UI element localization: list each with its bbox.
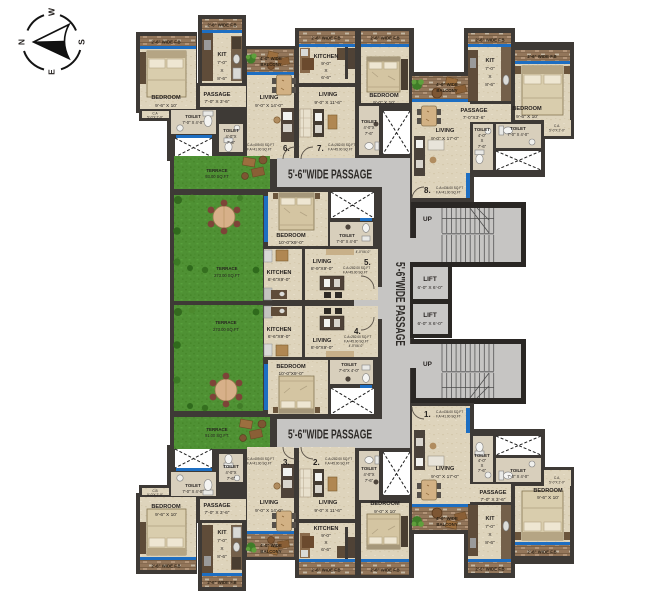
svg-text:BALCONY: BALCONY [436, 88, 457, 93]
svg-text:6'-0" X 6'-0": 6'-0" X 6'-0" [418, 321, 443, 327]
svg-text:91.00 SQ.FT.: 91.00 SQ.FT. [205, 433, 229, 438]
svg-text:KITCHEN: KITCHEN [267, 270, 292, 276]
svg-text:F.A=41.00 SQ.FT: F.A=41.00 SQ.FT [247, 148, 272, 152]
svg-text:9'-0" X 11'-6": 9'-0" X 11'-6" [314, 508, 342, 514]
svg-text:9'-0" X 10': 9'-0" X 10' [373, 100, 395, 106]
svg-text:7'-0" X 4'-0": 7'-0" X 4'-0" [507, 474, 529, 479]
svg-text:7'-6": 7'-6" [227, 140, 236, 145]
svg-text:PASSAGE: PASSAGE [204, 503, 231, 509]
svg-text:TOILET: TOILET [510, 468, 526, 473]
svg-text:PASSAGE: PASSAGE [204, 92, 231, 98]
svg-text:9'-0" X 14'-0": 9'-0" X 14'-0" [255, 508, 283, 514]
svg-text:C.A=282.00 SQ.FT: C.A=282.00 SQ.FT [325, 457, 352, 461]
svg-text:2'-6" WIDE F.B: 2'-6" WIDE F.B [207, 23, 236, 28]
svg-text:TOILET: TOILET [185, 483, 201, 488]
svg-text:5'-6"WIDE PASSAGE: 5'-6"WIDE PASSAGE [288, 168, 372, 182]
svg-text:N: N [16, 39, 26, 45]
svg-text:LIVING: LIVING [436, 466, 455, 472]
svg-text:8.: 8. [424, 186, 431, 195]
svg-text:7'-0" X 4'-0": 7'-0" X 4'-0" [182, 120, 204, 125]
svg-text:2'-6" WIDE F.B: 2'-6" WIDE F.B [475, 38, 504, 43]
svg-text:7.: 7. [317, 144, 324, 153]
svg-text:X: X [481, 138, 484, 143]
svg-text:KIT: KIT [217, 52, 227, 58]
svg-text:LIVING: LIVING [313, 259, 332, 265]
svg-text:7'-0": 7'-0" [217, 60, 227, 66]
svg-text:10'-0"X9'-0": 10'-0"X9'-0" [279, 240, 304, 246]
svg-text:LIVING: LIVING [313, 338, 332, 344]
svg-text:7'-6": 7'-6" [478, 468, 487, 473]
svg-text:9'-6" X 10': 9'-6" X 10' [155, 103, 177, 109]
svg-text:TOILET: TOILET [185, 114, 201, 119]
svg-text:F.A=41.00 SQ.FT: F.A=41.00 SQ.FT [436, 191, 461, 195]
svg-text:4'-0" WIDE: 4'-0" WIDE [436, 82, 458, 87]
svg-text:8'-6": 8'-6" [217, 554, 227, 560]
svg-text:LIVING: LIVING [260, 95, 279, 101]
svg-text:9'-6" X 10': 9'-6" X 10' [155, 512, 177, 518]
svg-text:2'-6" WIDE F.B: 2'-6" WIDE F.B [527, 550, 556, 555]
svg-text:F.A=45.00 SQ.FT: F.A=45.00 SQ.FT [344, 340, 369, 344]
svg-text:C.A=282.00 SQ.FT: C.A=282.00 SQ.FT [344, 335, 371, 339]
svg-text:8'-6": 8'-6" [485, 540, 495, 546]
svg-text:4'-0"X: 4'-0"X [364, 472, 375, 477]
svg-text:7'-0": 7'-0" [485, 524, 495, 530]
svg-text:2'-6" WIDE F.B: 2'-6" WIDE F.B [370, 568, 399, 573]
svg-text:8'-6": 8'-6" [485, 82, 495, 88]
svg-text:2'-6" WIDE F.B: 2'-6" WIDE F.B [207, 580, 236, 585]
svg-text:BALCONY: BALCONY [436, 522, 457, 527]
svg-text:BEDROOM: BEDROOM [151, 95, 181, 101]
svg-text:6'-6"X9'-0": 6'-6"X9'-0" [268, 277, 291, 283]
svg-text:PASSAGE: PASSAGE [461, 108, 488, 114]
svg-text:2'-6" WIDE F.B: 2'-6" WIDE F.B [475, 567, 504, 572]
svg-text:C.A=409.00 SQ.FT: C.A=409.00 SQ.FT [247, 457, 274, 461]
svg-text:F.A=45.00 SQ.FT: F.A=45.00 SQ.FT [343, 271, 368, 275]
svg-text:4'-0"X: 4'-0"X [226, 134, 237, 139]
svg-text:93.00 SQ.FT: 93.00 SQ.FT [205, 174, 229, 179]
svg-text:7'-0": 7'-0" [217, 538, 227, 544]
svg-text:6'-6"X9'-0": 6'-6"X9'-0" [268, 334, 291, 340]
svg-text:C.A=409.00 SQ.FT: C.A=409.00 SQ.FT [247, 143, 274, 147]
svg-text:7'-0" X 4'-0": 7'-0" X 4'-0" [336, 239, 358, 244]
svg-text:4'-0"X6'-0": 4'-0"X6'-0" [356, 250, 371, 254]
svg-text:9'-0" X 17'-0": 9'-0" X 17'-0" [431, 136, 459, 142]
svg-text:7'-6": 7'-6" [365, 131, 374, 136]
svg-text:E: E [46, 69, 56, 75]
svg-text:8'-9"X9'-0": 8'-9"X9'-0" [311, 266, 334, 272]
svg-text:TERRACE: TERRACE [215, 320, 236, 325]
svg-text:PASSAGE: PASSAGE [480, 490, 507, 496]
svg-text:UP: UP [423, 361, 433, 368]
svg-text:BALCONY: BALCONY [260, 549, 281, 554]
svg-text:TOILET: TOILET [339, 233, 355, 238]
svg-text:7'-0": 7'-0" [485, 66, 495, 72]
svg-text:273.00 SQ.FT: 273.00 SQ.FT [214, 273, 240, 278]
svg-text:C.A=282.00 SQ.FT: C.A=282.00 SQ.FT [328, 143, 355, 147]
svg-text:TOILET: TOILET [341, 362, 357, 367]
svg-text:5'-0"X 2'-0": 5'-0"X 2'-0" [147, 116, 163, 120]
svg-text:W: W [46, 7, 56, 16]
svg-text:LIVING: LIVING [319, 500, 338, 506]
svg-text:5'-0"X 2'-0": 5'-0"X 2'-0" [147, 493, 163, 497]
svg-text:6'-6": 6'-6" [321, 75, 331, 81]
svg-text:2'-6" WIDE F.B: 2'-6" WIDE F.B [311, 568, 340, 573]
svg-text:9'-0" X 11'-6": 9'-0" X 11'-6" [314, 100, 342, 106]
svg-text:C.A=436.00 SQ.FT: C.A=436.00 SQ.FT [436, 410, 463, 414]
svg-text:BEDROOM: BEDROOM [276, 233, 306, 239]
svg-text:BEDROOM: BEDROOM [512, 106, 542, 112]
svg-text:9'-0": 9'-0" [321, 533, 331, 539]
svg-text:9'-0" X 17'-0": 9'-0" X 17'-0" [431, 474, 459, 480]
svg-text:BALCONY: BALCONY [260, 62, 281, 67]
svg-text:273.00 SQ.FT: 273.00 SQ.FT [213, 327, 239, 332]
svg-text:5'-6"WIDE PASSAGE: 5'-6"WIDE PASSAGE [393, 262, 407, 346]
svg-text:7'-0" X 4'-0": 7'-0" X 4'-0" [507, 132, 529, 137]
svg-text:2'-6" WIDE F.B: 2'-6" WIDE F.B [527, 54, 556, 59]
svg-text:9'-6" X 10': 9'-6" X 10' [537, 495, 559, 501]
svg-text:4'-0"X: 4'-0"X [364, 125, 375, 130]
svg-text:KITCHEN: KITCHEN [314, 54, 339, 60]
svg-text:5'-0"X 2'-0": 5'-0"X 2'-0" [549, 129, 565, 133]
svg-text:2'-6" WIDE F.B: 2'-6" WIDE F.B [311, 36, 340, 41]
svg-text:LIFT: LIFT [423, 312, 437, 319]
svg-text:6.: 6. [283, 144, 290, 153]
svg-text:9'-6" X 10': 9'-6" X 10' [516, 114, 538, 120]
svg-text:8'-9"X9'-0": 8'-9"X9'-0" [311, 345, 334, 351]
svg-text:TOILET: TOILET [223, 128, 239, 133]
svg-text:4'-0" WIDE: 4'-0" WIDE [260, 543, 282, 548]
svg-text:7'-6": 7'-6" [365, 478, 374, 483]
svg-text:2'-6" WIDE F.B: 2'-6" WIDE F.B [370, 36, 399, 41]
svg-text:8'-6": 8'-6" [217, 76, 227, 82]
svg-text:7'-6"X 4'-0": 7'-6"X 4'-0" [339, 368, 360, 373]
svg-text:F.A=41.00 SQ.FT: F.A=41.00 SQ.FT [247, 462, 272, 466]
svg-text:3.: 3. [283, 458, 290, 467]
svg-text:7'-6": 7'-6" [227, 476, 236, 481]
svg-text:C.A.: C.A. [554, 476, 560, 480]
svg-text:7'-0" X 4'-0": 7'-0" X 4'-0" [182, 489, 204, 494]
svg-text:LIVING: LIVING [436, 128, 455, 134]
svg-text:2'-6" WIDE F.B: 2'-6" WIDE F.B [151, 564, 180, 569]
svg-text:C.A=282.00 SQ.FT: C.A=282.00 SQ.FT [343, 266, 370, 270]
svg-text:7'-0" X 3'-6": 7'-0" X 3'-6" [205, 99, 230, 105]
svg-text:7'-0" X 3'-6": 7'-0" X 3'-6" [205, 510, 230, 516]
svg-text:6'-0" X 6'-0": 6'-0" X 6'-0" [418, 285, 443, 291]
svg-text:2'-6" WIDE F.B: 2'-6" WIDE F.B [151, 40, 180, 45]
svg-text:9'-0" X 10': 9'-0" X 10' [374, 509, 396, 515]
svg-text:TOILET: TOILET [510, 126, 526, 131]
svg-text:2.: 2. [313, 458, 320, 467]
svg-text:10'-0"X9'-0": 10'-0"X9'-0" [279, 371, 304, 377]
svg-text:KIT: KIT [485, 58, 495, 64]
svg-text:5'-6"WIDE PASSAGE: 5'-6"WIDE PASSAGE [288, 428, 372, 442]
svg-text:TOILET: TOILET [361, 119, 377, 124]
svg-text:TOILET: TOILET [223, 464, 239, 469]
svg-text:LIVING: LIVING [319, 92, 338, 98]
svg-text:F.A=45.00 SQ.FT: F.A=45.00 SQ.FT [325, 462, 350, 466]
svg-text:BEDROOM: BEDROOM [369, 93, 399, 99]
svg-text:TERRACE: TERRACE [206, 168, 227, 173]
svg-text:LIVING: LIVING [260, 500, 279, 506]
svg-text:TOILET: TOILET [474, 127, 490, 132]
svg-text:9'-0": 9'-0" [321, 61, 331, 67]
svg-text:4'-0"X: 4'-0"X [226, 470, 237, 475]
svg-text:C.A=436.00 SQ.FT: C.A=436.00 SQ.FT [436, 186, 463, 190]
svg-text:BEDROOM: BEDROOM [151, 504, 181, 510]
svg-text:TERRACE: TERRACE [216, 266, 237, 271]
svg-text:C.A.: C.A. [554, 124, 560, 128]
svg-text:KIT: KIT [217, 530, 227, 536]
svg-text:TOILET: TOILET [361, 466, 377, 471]
svg-text:KITCHEN: KITCHEN [267, 327, 292, 333]
svg-text:F.A=41.00 SQ.FT: F.A=41.00 SQ.FT [436, 415, 461, 419]
svg-text:6'-6": 6'-6" [321, 547, 331, 553]
svg-text:4'-0"X6'-0": 4'-0"X6'-0" [349, 344, 364, 348]
svg-text:BEDROOM: BEDROOM [533, 488, 563, 494]
svg-text:7'-0"X3'-6": 7'-0"X3'-6" [463, 115, 486, 121]
svg-text:7'-0" X 3'-6": 7'-0" X 3'-6" [481, 497, 506, 503]
svg-text:1.: 1. [424, 410, 431, 419]
svg-text:7'-6": 7'-6" [478, 144, 487, 149]
svg-text:UP: UP [423, 216, 433, 223]
svg-text:S: S [76, 39, 86, 45]
svg-text:5'-0"X 2'-0": 5'-0"X 2'-0" [549, 481, 565, 485]
svg-text:TERRACE: TERRACE [206, 427, 227, 432]
svg-text:KIT: KIT [485, 516, 495, 522]
svg-text:9'-0" X 14'-0": 9'-0" X 14'-0" [255, 103, 283, 109]
svg-text:F.A=45.00 SQ.FT: F.A=45.00 SQ.FT [328, 148, 353, 152]
svg-text:BEDROOM: BEDROOM [370, 501, 400, 507]
svg-text:KITCHEN: KITCHEN [314, 526, 339, 532]
svg-text:4'-0" WIDE: 4'-0" WIDE [260, 56, 282, 61]
svg-text:4'-0" WIDE: 4'-0" WIDE [436, 516, 458, 521]
svg-text:BEDROOM: BEDROOM [276, 364, 306, 370]
svg-text:LIFT: LIFT [423, 276, 437, 283]
